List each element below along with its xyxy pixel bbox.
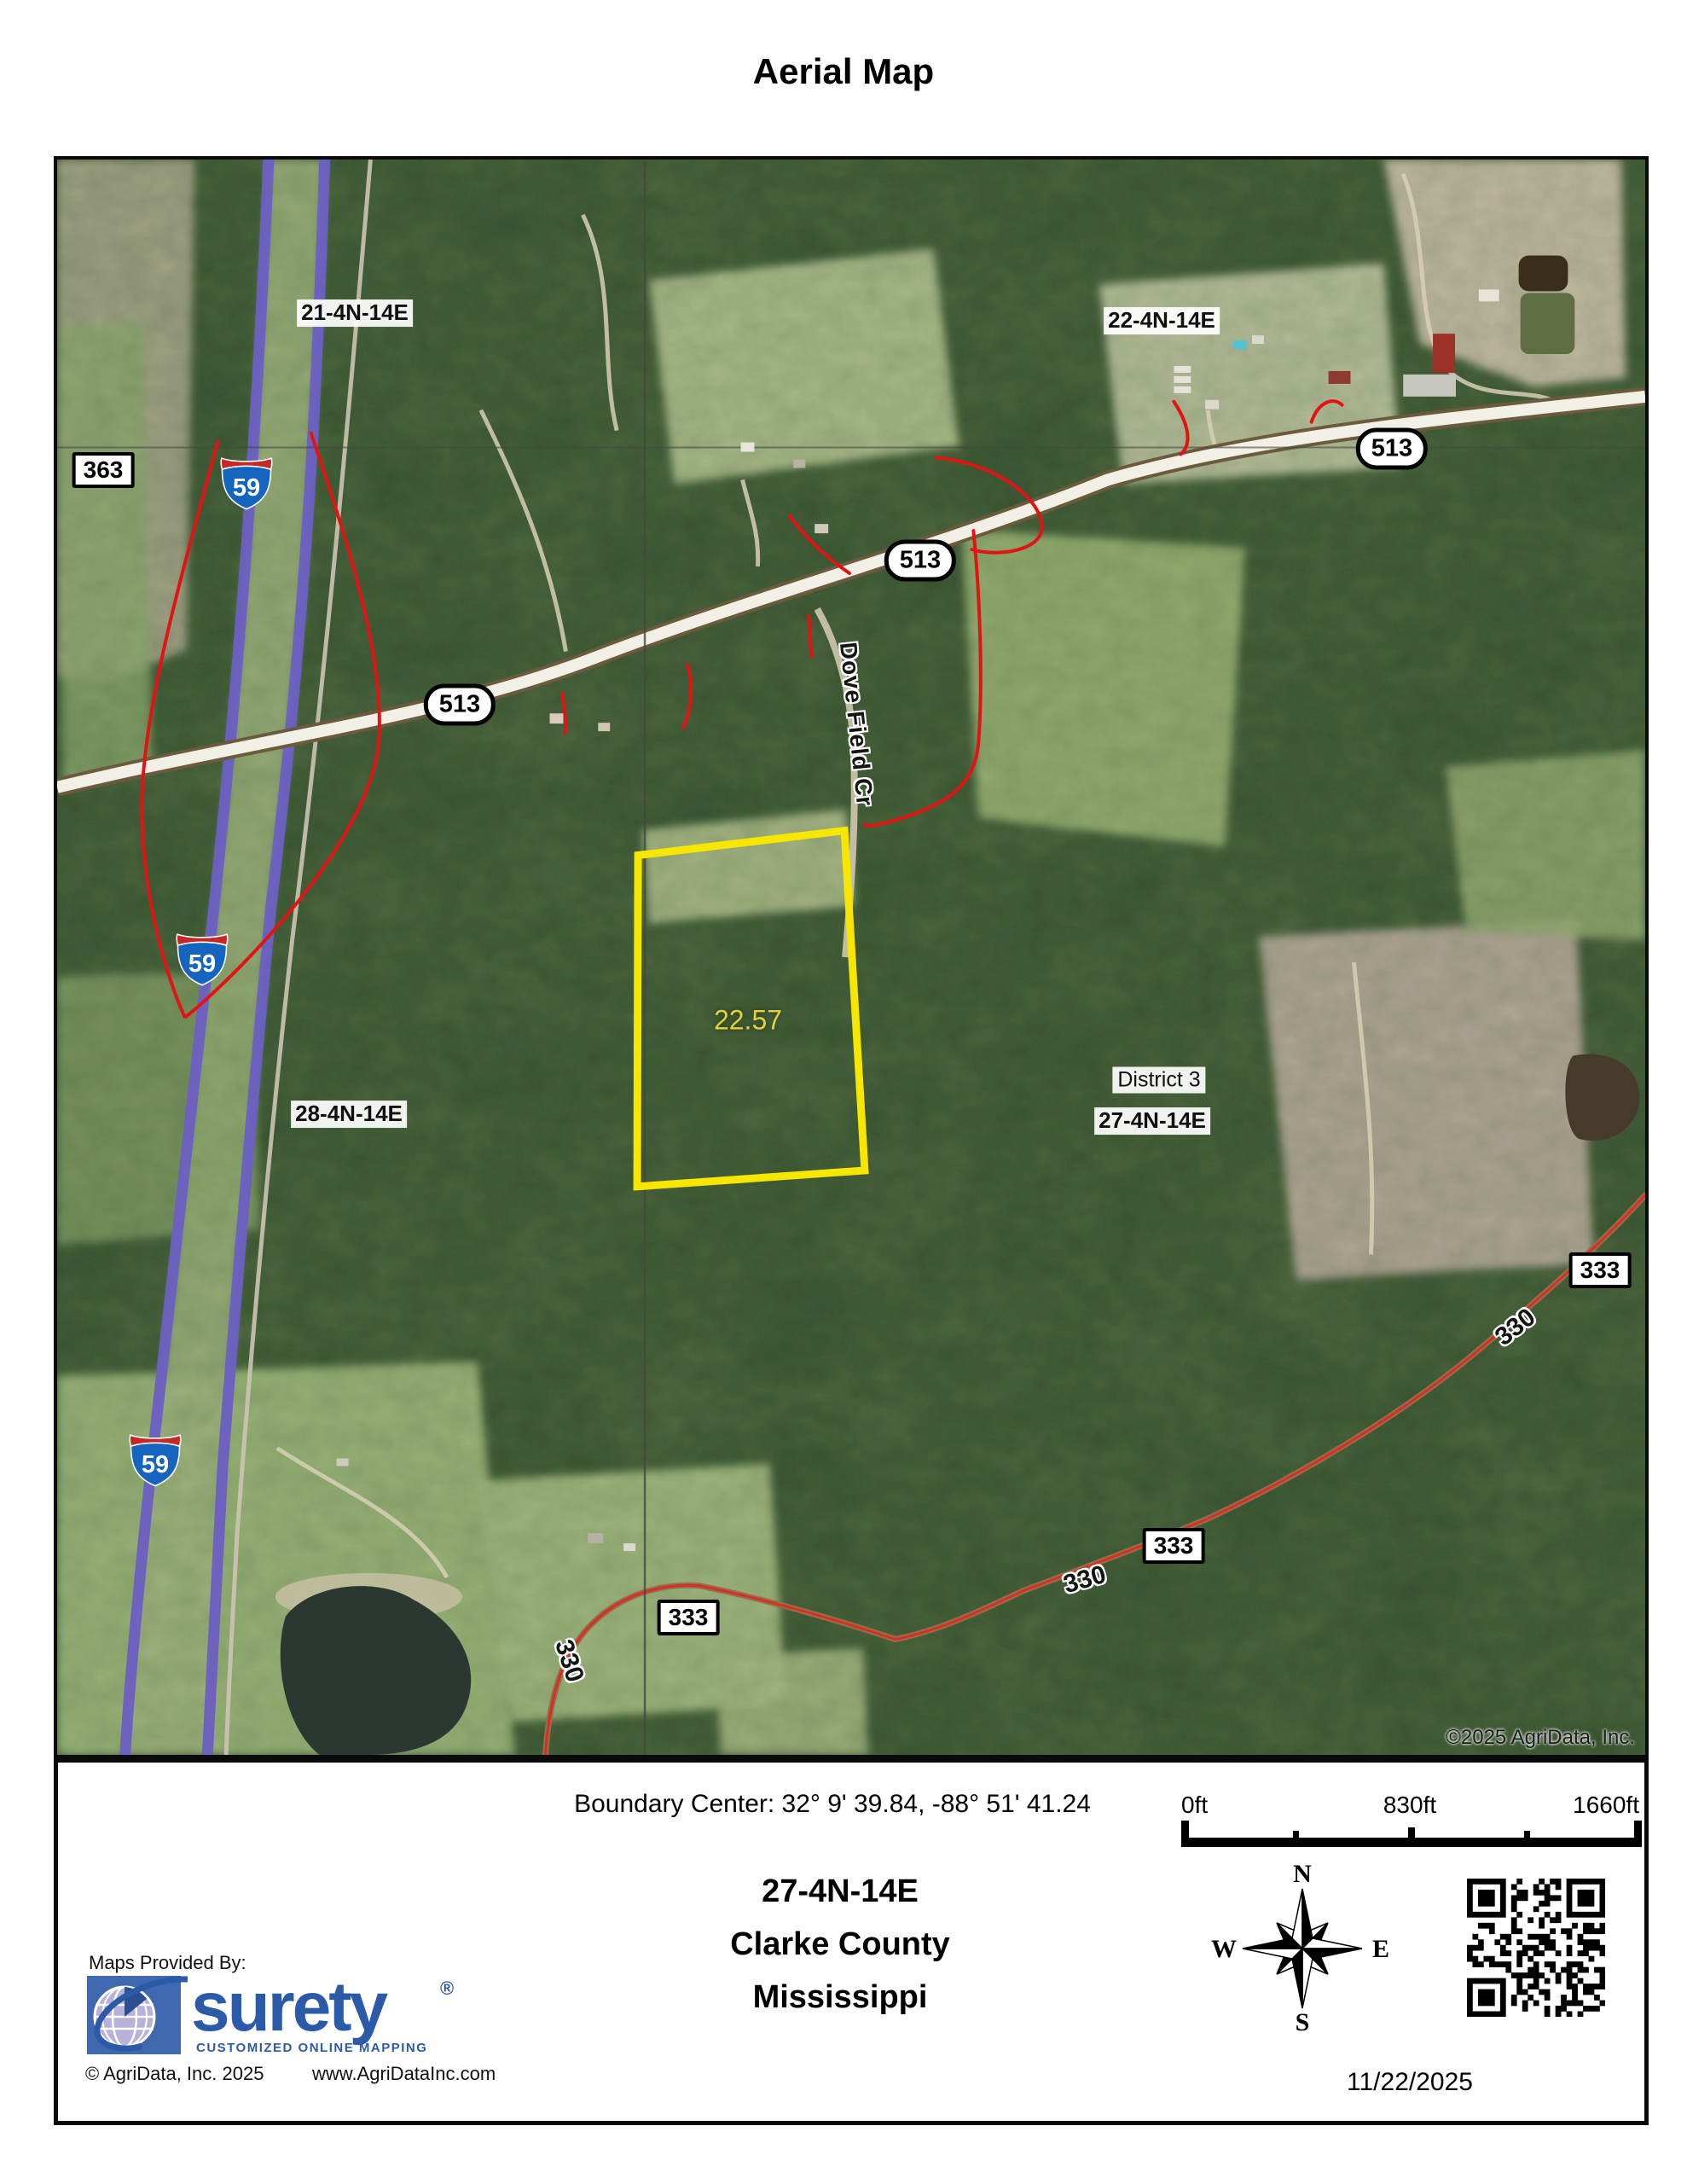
interstate-59-shield: 59: [129, 1432, 182, 1487]
compass-west-label: W: [1211, 1935, 1237, 1963]
highway-513-shield: 513: [884, 540, 956, 582]
highway-513-shield: 513: [424, 684, 496, 726]
registered-mark: ®: [440, 1978, 454, 2000]
aerial-imagery: [57, 160, 1645, 1755]
interstate-59-shield: 59: [176, 932, 229, 986]
section-label-sw: 28-4N-14E: [291, 1101, 407, 1128]
compass-north-label: N: [1293, 1860, 1312, 1888]
road-333-shield: 333: [1569, 1252, 1632, 1288]
scale-label-start: 0ft: [1181, 1792, 1208, 1819]
section-label-se: 27-4N-14E: [1094, 1107, 1210, 1135]
parcel-acreage-label: 22.57: [714, 1005, 782, 1037]
page-title: Aerial Map: [0, 51, 1687, 92]
section-label-ne: 22-4N-14E: [1104, 307, 1220, 334]
road-363-shield: 363: [72, 452, 135, 488]
district-label: District 3: [1112, 1067, 1205, 1094]
compass-south-label: S: [1296, 2008, 1310, 2036]
map-date: 11/22/2025: [1347, 2068, 1473, 2097]
section-label-nw: 21-4N-14E: [297, 299, 413, 327]
aerial-map: 59 59 59 513 513 513 363 333 333 333 330…: [54, 156, 1649, 1758]
location-county: Clarke County: [730, 1926, 950, 1963]
road-333-shield: 333: [658, 1600, 720, 1635]
provider-brand: surety: [191, 1972, 386, 2042]
provider-website: www.AgriDataInc.com: [312, 2063, 496, 2085]
aerial-map-page: Aerial Map: [0, 0, 1687, 2184]
interstate-59-shield: 59: [220, 456, 273, 510]
scale-label-mid: 830ft: [1383, 1792, 1436, 1819]
qr-code: [1467, 1879, 1605, 2017]
highway-513-shield: 513: [1356, 428, 1428, 470]
imagery-copyright: ©2025 AgriData, Inc.: [1446, 1726, 1635, 1750]
road-333-shield: 333: [1143, 1528, 1205, 1564]
compass-east-label: E: [1372, 1935, 1389, 1963]
provider-copyright: © AgriData, Inc. 2025: [85, 2063, 264, 2085]
boundary-center-coordinates: Boundary Center: 32° 9' 39.84, -88° 51' …: [574, 1790, 1091, 1819]
location-section: 27-4N-14E: [762, 1873, 919, 1910]
location-state: Mississippi: [753, 1979, 928, 2016]
scale-label-end: 1660ft: [1573, 1792, 1639, 1819]
compass-rose-icon: N E S W: [1200, 1844, 1405, 2049]
provider-tagline: CUSTOMIZED ONLINE MAPPING: [196, 2041, 427, 2055]
